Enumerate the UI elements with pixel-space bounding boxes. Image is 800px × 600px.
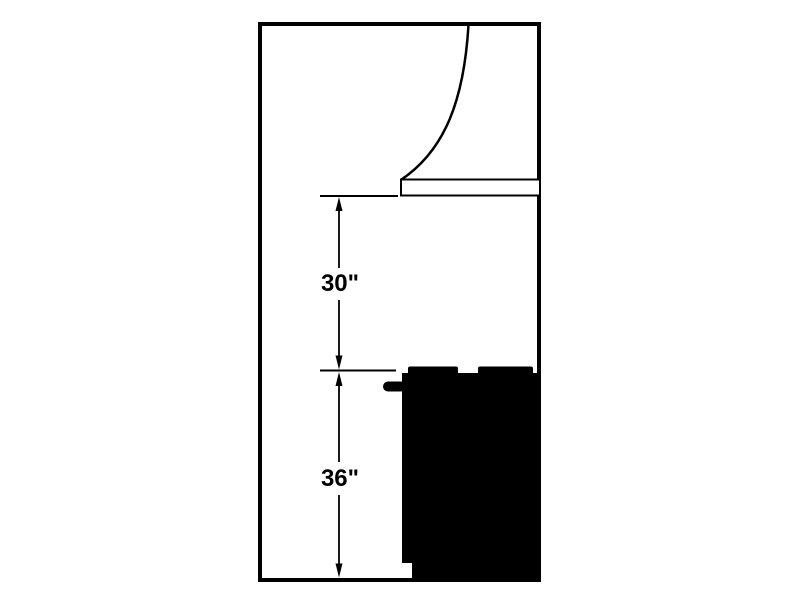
- hood-canopy-base: [401, 180, 540, 196]
- range-body: [402, 373, 541, 580]
- range-kickplate-notch: [402, 563, 412, 578]
- diagram-canvas: 30" 36": [0, 0, 800, 600]
- arrowhead-30-up: [336, 197, 343, 211]
- clearance-diagram: 30" 36": [0, 0, 800, 600]
- burner-grate-left: [408, 367, 458, 377]
- range-silhouette: [383, 367, 541, 581]
- burner-grate-right: [478, 367, 533, 377]
- arrowhead-36-down: [336, 564, 343, 578]
- dim-label-30: 30": [321, 270, 359, 297]
- arrowhead-30-down: [336, 356, 343, 370]
- range-handle: [383, 382, 406, 392]
- hood-curve: [402, 25, 469, 180]
- arrowhead-36-up: [336, 372, 343, 386]
- dim-label-36: 36": [321, 465, 359, 492]
